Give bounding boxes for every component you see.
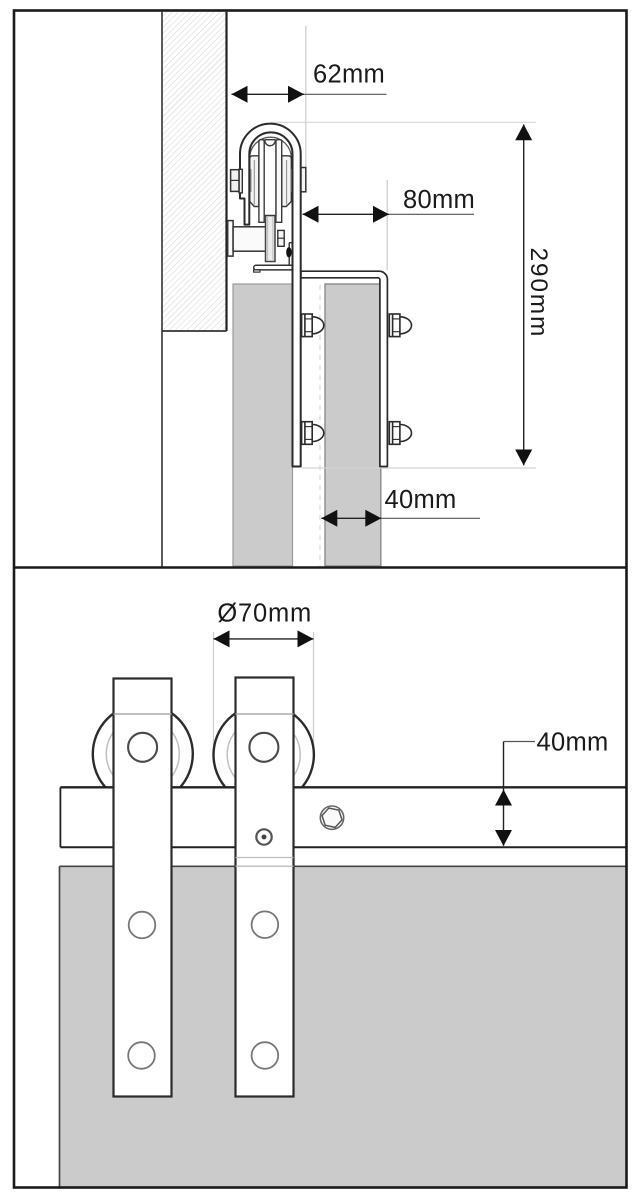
svg-text:290mm: 290mm xyxy=(525,248,552,339)
svg-text:40mm: 40mm xyxy=(385,486,457,514)
svg-text:Ø70mm: Ø70mm xyxy=(217,600,312,628)
svg-text:80mm: 80mm xyxy=(403,186,475,214)
svg-text:40mm: 40mm xyxy=(537,729,609,757)
svg-text:62mm: 62mm xyxy=(313,61,385,89)
